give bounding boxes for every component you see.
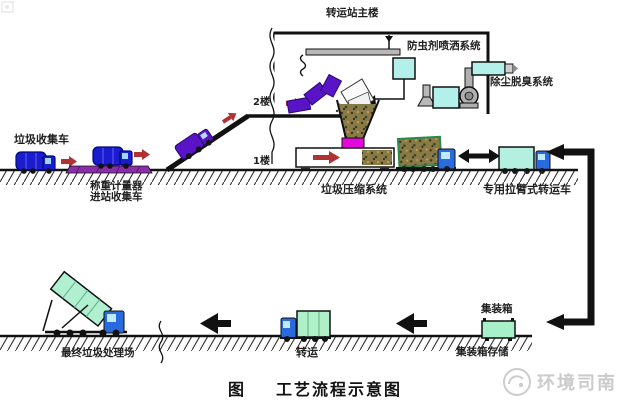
dedust-filter-box xyxy=(433,87,459,108)
weighing-label-line2: 进站收集车 xyxy=(90,192,143,204)
disposal-label: 最终垃圾处理场 xyxy=(61,348,135,360)
exhaust-duct xyxy=(472,62,518,75)
collection-truck-icon xyxy=(16,152,55,174)
transport-label: 转运 xyxy=(296,347,318,359)
floor2-label: 2楼 xyxy=(253,97,270,108)
spray-pipe xyxy=(301,49,401,76)
figure-caption: 图 工艺流程示意图 xyxy=(228,376,402,400)
floor1-label: 1楼 xyxy=(253,156,270,167)
caption-title: 工艺流程示意图 xyxy=(276,376,402,400)
flow-arrow-left-2-icon xyxy=(396,313,427,334)
spray-system-label: 防虫剂喷洒系统 xyxy=(407,41,481,53)
red-arrow-1-icon xyxy=(61,156,77,167)
building-title: 转运站主楼 xyxy=(326,8,379,20)
caption-prefix: 图 xyxy=(228,376,246,400)
container-storage-label: 集装箱存储 xyxy=(456,347,509,359)
ramp-truck-icon xyxy=(174,126,215,162)
roof-vent-icon xyxy=(385,35,393,50)
container-label: 集装箱 xyxy=(481,304,513,316)
transport-truck-icon xyxy=(280,311,331,342)
collection-truck-label: 垃圾收集车 xyxy=(14,134,69,146)
transfer-truck-label: 专用拉臂式转运车 xyxy=(483,184,571,196)
compression-label: 垃圾压缩系统 xyxy=(321,184,387,196)
weighing-truck-icon xyxy=(93,147,132,169)
double-arrow-icon xyxy=(458,149,500,163)
container-box-icon xyxy=(482,318,515,341)
loading-container-truck-icon xyxy=(396,137,456,172)
watermark-text: 环境司南 xyxy=(537,369,617,395)
process-flow-diagram: 转运站主楼 防虫剂喷洒系统 除尘脱臭系统 2楼 1楼 垃圾收集车 称重计量器 进… xyxy=(0,0,620,405)
watermark-logo-icon xyxy=(504,369,530,395)
garbage-hopper xyxy=(337,100,379,139)
flow-arrow-left-1-icon xyxy=(200,313,231,334)
compactor-housing xyxy=(296,148,394,171)
disposal-tipping-truck-icon xyxy=(43,272,127,337)
red-arrow-2-icon xyxy=(134,149,150,160)
corner-artifact xyxy=(2,2,13,12)
dedust-system-label: 除尘脱臭系统 xyxy=(490,77,553,89)
